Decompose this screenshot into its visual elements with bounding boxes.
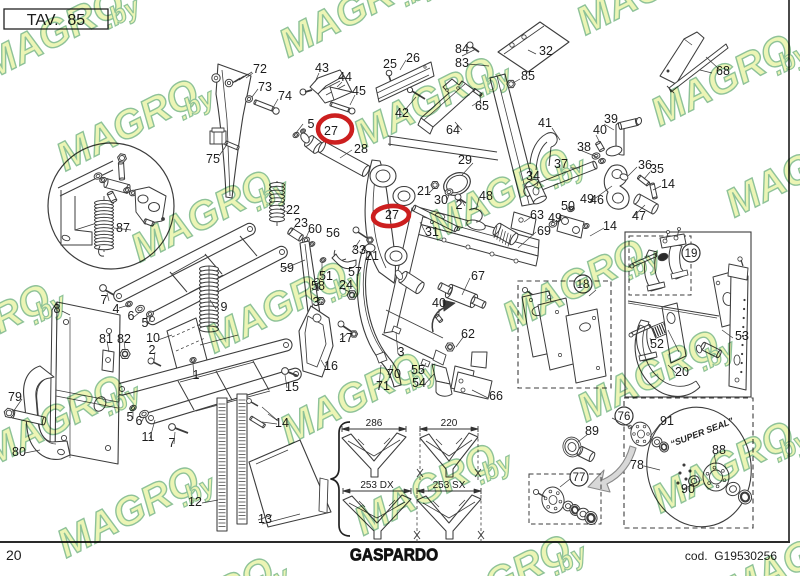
svg-text:53: 53 (735, 329, 749, 343)
svg-text:72: 72 (253, 62, 267, 76)
svg-text:16: 16 (324, 359, 338, 373)
svg-text:84: 84 (455, 42, 469, 56)
svg-text:29: 29 (458, 153, 472, 167)
svg-text:91: 91 (660, 414, 674, 428)
svg-text:35: 35 (650, 162, 664, 176)
svg-text:21: 21 (365, 249, 379, 263)
svg-text:44: 44 (338, 70, 352, 84)
svg-text:77: 77 (573, 472, 586, 484)
svg-text:43: 43 (315, 61, 329, 75)
svg-text:17: 17 (339, 331, 353, 345)
svg-text:74: 74 (278, 89, 292, 103)
svg-text:26: 26 (406, 51, 420, 65)
svg-text:220: 220 (441, 418, 458, 429)
svg-text:27: 27 (324, 124, 338, 138)
svg-text:75: 75 (206, 152, 220, 166)
svg-text:41: 41 (538, 116, 552, 130)
svg-text:11: 11 (142, 430, 155, 444)
svg-text:40: 40 (593, 123, 607, 137)
svg-text:50: 50 (561, 199, 575, 213)
svg-text:60: 60 (308, 222, 322, 236)
svg-text:6: 6 (128, 309, 135, 323)
svg-text:27: 27 (385, 208, 399, 222)
svg-text:49: 49 (580, 192, 594, 206)
svg-text:49: 49 (548, 211, 562, 225)
svg-text:5: 5 (142, 316, 149, 330)
svg-text:25: 25 (383, 57, 397, 71)
svg-text:78: 78 (630, 458, 644, 472)
svg-text:7: 7 (101, 293, 108, 307)
svg-text:14: 14 (603, 219, 617, 233)
svg-text:45: 45 (352, 84, 366, 98)
svg-text:6: 6 (136, 414, 143, 428)
svg-text:23: 23 (294, 216, 308, 230)
svg-text:19: 19 (685, 248, 698, 260)
svg-text:85: 85 (521, 69, 535, 83)
svg-text:67: 67 (471, 269, 485, 283)
svg-text:63: 63 (530, 208, 544, 222)
svg-text:286: 286 (366, 418, 383, 429)
svg-text:5: 5 (308, 117, 315, 131)
svg-text:22: 22 (286, 203, 300, 217)
svg-text:33: 33 (352, 243, 366, 257)
svg-text:4: 4 (113, 302, 120, 316)
svg-text:GASPARDO: GASPARDO (350, 544, 438, 564)
svg-text:66: 66 (489, 389, 503, 403)
svg-text:56: 56 (326, 226, 340, 240)
svg-text:62: 62 (461, 327, 475, 341)
svg-text:32: 32 (539, 44, 553, 58)
svg-text:73: 73 (258, 80, 272, 94)
svg-text:21: 21 (417, 184, 431, 198)
svg-text:69: 69 (537, 224, 551, 238)
svg-text:40: 40 (432, 296, 446, 310)
svg-text:20: 20 (6, 547, 22, 563)
svg-text:14: 14 (661, 177, 675, 191)
svg-text:59: 59 (280, 261, 294, 275)
svg-text:81: 81 (99, 332, 113, 346)
